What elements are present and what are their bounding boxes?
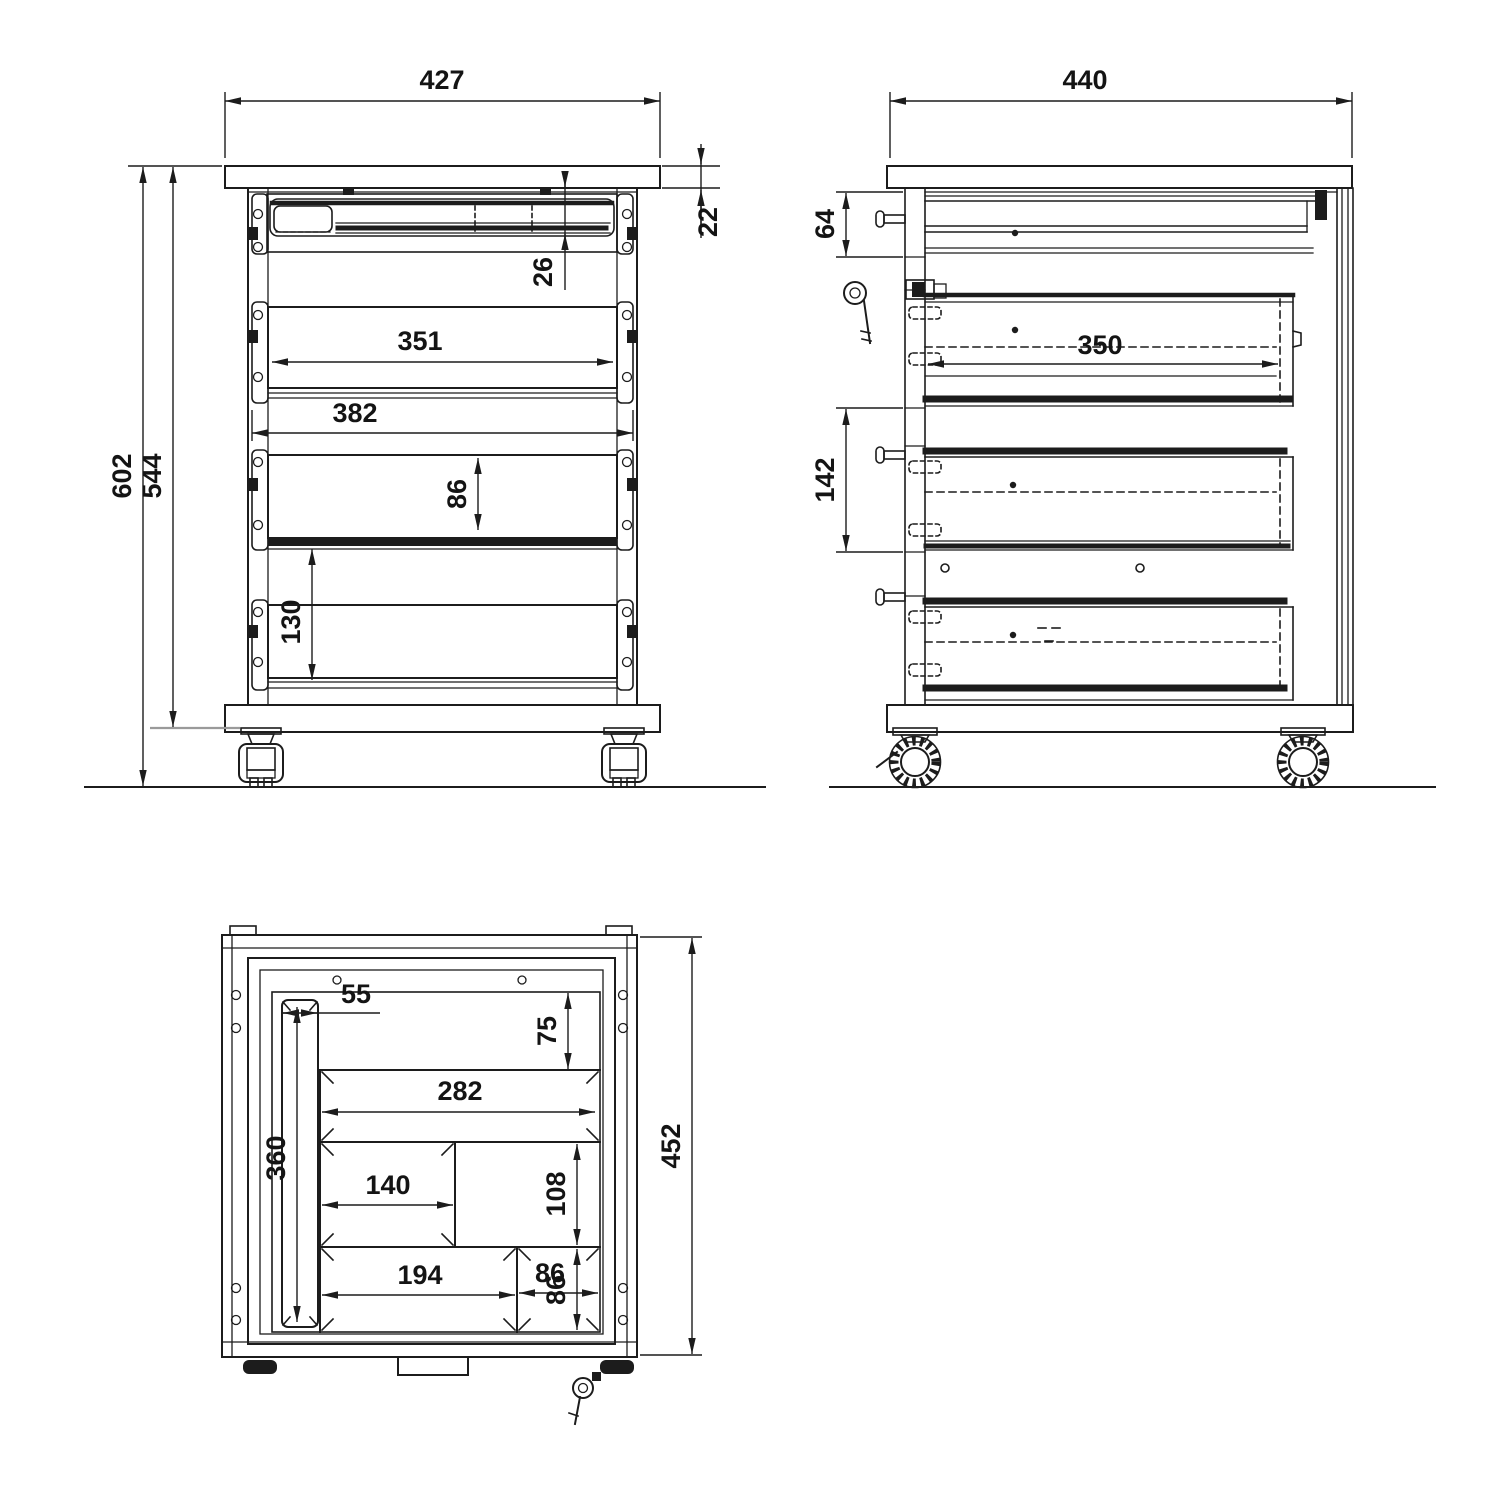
front-drawer-4 bbox=[249, 600, 636, 690]
side-view: 440 64 bbox=[810, 65, 1435, 788]
front-overall-width-label: 427 bbox=[419, 65, 464, 95]
drawer-rail-strip bbox=[268, 539, 617, 546]
caster-side-left bbox=[890, 728, 941, 788]
top-middle-depth-label: 108 bbox=[541, 1171, 571, 1216]
key-icon bbox=[569, 1372, 601, 1424]
caster-brake-lever bbox=[877, 752, 897, 767]
side-overall-depth-label: 440 bbox=[1062, 65, 1107, 95]
latch-icon bbox=[627, 227, 636, 240]
top-corner-tray-depth-label: 86 bbox=[541, 1275, 571, 1305]
screw-hole bbox=[941, 564, 949, 572]
front-view: 427 22 bbox=[85, 65, 765, 787]
caster-front-right bbox=[602, 728, 646, 787]
knob-drawer-4 bbox=[876, 589, 905, 605]
top-dim-overall-depth: 452 bbox=[640, 937, 702, 1355]
side-top-panel bbox=[887, 166, 1352, 188]
front-tray-depth-label: 26 bbox=[528, 257, 558, 287]
screw-hole bbox=[232, 1024, 241, 1033]
side-drawer-4 bbox=[909, 601, 1293, 700]
front-opening-width-label: 351 bbox=[397, 326, 442, 356]
top-dim-front-clearance: 75 bbox=[532, 993, 568, 1069]
screw-hole bbox=[619, 1284, 628, 1293]
front-lower-spacing-label: 130 bbox=[276, 599, 306, 644]
top-pen-width-label: 55 bbox=[341, 979, 371, 1009]
technical-drawing: 427 22 bbox=[0, 0, 1500, 1500]
knob-drawer-3 bbox=[876, 447, 905, 463]
front-carcass-height-label: 544 bbox=[137, 453, 167, 498]
caster-front-left bbox=[239, 728, 283, 787]
front-pencil-drawer bbox=[249, 189, 636, 254]
side-pencil-height-label: 64 bbox=[810, 209, 840, 239]
screw-hole bbox=[232, 1316, 241, 1325]
screw-hole bbox=[619, 1024, 628, 1033]
front-dim-front-width: 382 bbox=[252, 398, 633, 441]
side-pencil-tray bbox=[925, 190, 1337, 253]
top-dim-bottom-tray: 194 bbox=[322, 1260, 515, 1295]
side-dim-drawer-pitch: 142 bbox=[810, 408, 903, 552]
front-dim-top-thickness: 22 bbox=[662, 144, 723, 238]
knob-pencil-drawer bbox=[876, 211, 905, 227]
top-bottom-tray-label: 194 bbox=[397, 1260, 442, 1290]
top-dim-large-tray: 282 bbox=[322, 1076, 595, 1112]
front-overall-height-label: 602 bbox=[107, 453, 137, 498]
top-large-tray-label: 282 bbox=[437, 1076, 482, 1106]
top-dim-small-tray: 140 bbox=[322, 1170, 453, 1205]
side-drawer-3 bbox=[909, 451, 1293, 550]
screw-hole bbox=[518, 976, 526, 984]
screw-hole bbox=[232, 1284, 241, 1293]
screw-hole bbox=[232, 991, 241, 1000]
foot-pad bbox=[600, 1360, 634, 1374]
top-pen-length-label: 360 bbox=[261, 1135, 291, 1180]
side-dim-overall-depth: 440 bbox=[890, 65, 1352, 158]
front-dim-overall-width: 427 bbox=[225, 65, 660, 158]
screw-hole bbox=[333, 976, 341, 984]
side-drawer-depth-label: 350 bbox=[1077, 330, 1122, 360]
side-back-panel bbox=[1337, 188, 1353, 705]
front-dim-middle-height: 86 bbox=[442, 458, 478, 530]
foot-pad bbox=[243, 1360, 277, 1374]
lock-and-key-icon bbox=[844, 280, 946, 343]
front-carcass bbox=[248, 188, 637, 705]
front-dim-lower-spacing: 130 bbox=[276, 549, 312, 680]
side-drawer-pitch-label: 142 bbox=[810, 457, 840, 502]
caster-side-right bbox=[1278, 728, 1329, 788]
front-plinth bbox=[225, 705, 660, 732]
top-overall-depth-label: 452 bbox=[656, 1123, 686, 1168]
top-small-tray-label: 140 bbox=[365, 1170, 410, 1200]
top-dim-pen-length: 360 bbox=[261, 1007, 297, 1322]
side-drawer-2: 350 bbox=[909, 295, 1301, 406]
front-top-panel bbox=[225, 166, 660, 188]
front-drawer-3: 86 bbox=[249, 450, 636, 550]
front-dim-opening-width: 351 bbox=[272, 326, 613, 362]
drawing-canvas: 427 22 bbox=[0, 0, 1500, 1500]
front-top-thickness-label: 22 bbox=[693, 207, 723, 237]
handle-notch bbox=[398, 1357, 468, 1375]
clip-icon bbox=[540, 189, 551, 195]
top-dim-middle-depth: 108 bbox=[541, 1144, 577, 1245]
top-front-clearance-label: 75 bbox=[532, 1016, 562, 1046]
latch-icon bbox=[249, 227, 258, 240]
side-dim-pencil-height: 64 bbox=[810, 192, 903, 257]
clip-icon bbox=[343, 189, 354, 195]
top-view: 55 360 75 282 140 108 194 86 bbox=[222, 926, 702, 1424]
screw-hole bbox=[619, 991, 628, 1000]
front-dim-carcass-height: 544 bbox=[137, 167, 240, 728]
front-middle-height-label: 86 bbox=[442, 479, 472, 509]
screw-hole bbox=[1136, 564, 1144, 572]
front-front-width-label: 382 bbox=[332, 398, 377, 428]
screw-hole bbox=[619, 1316, 628, 1325]
front-drawer-2: 351 bbox=[249, 302, 636, 403]
